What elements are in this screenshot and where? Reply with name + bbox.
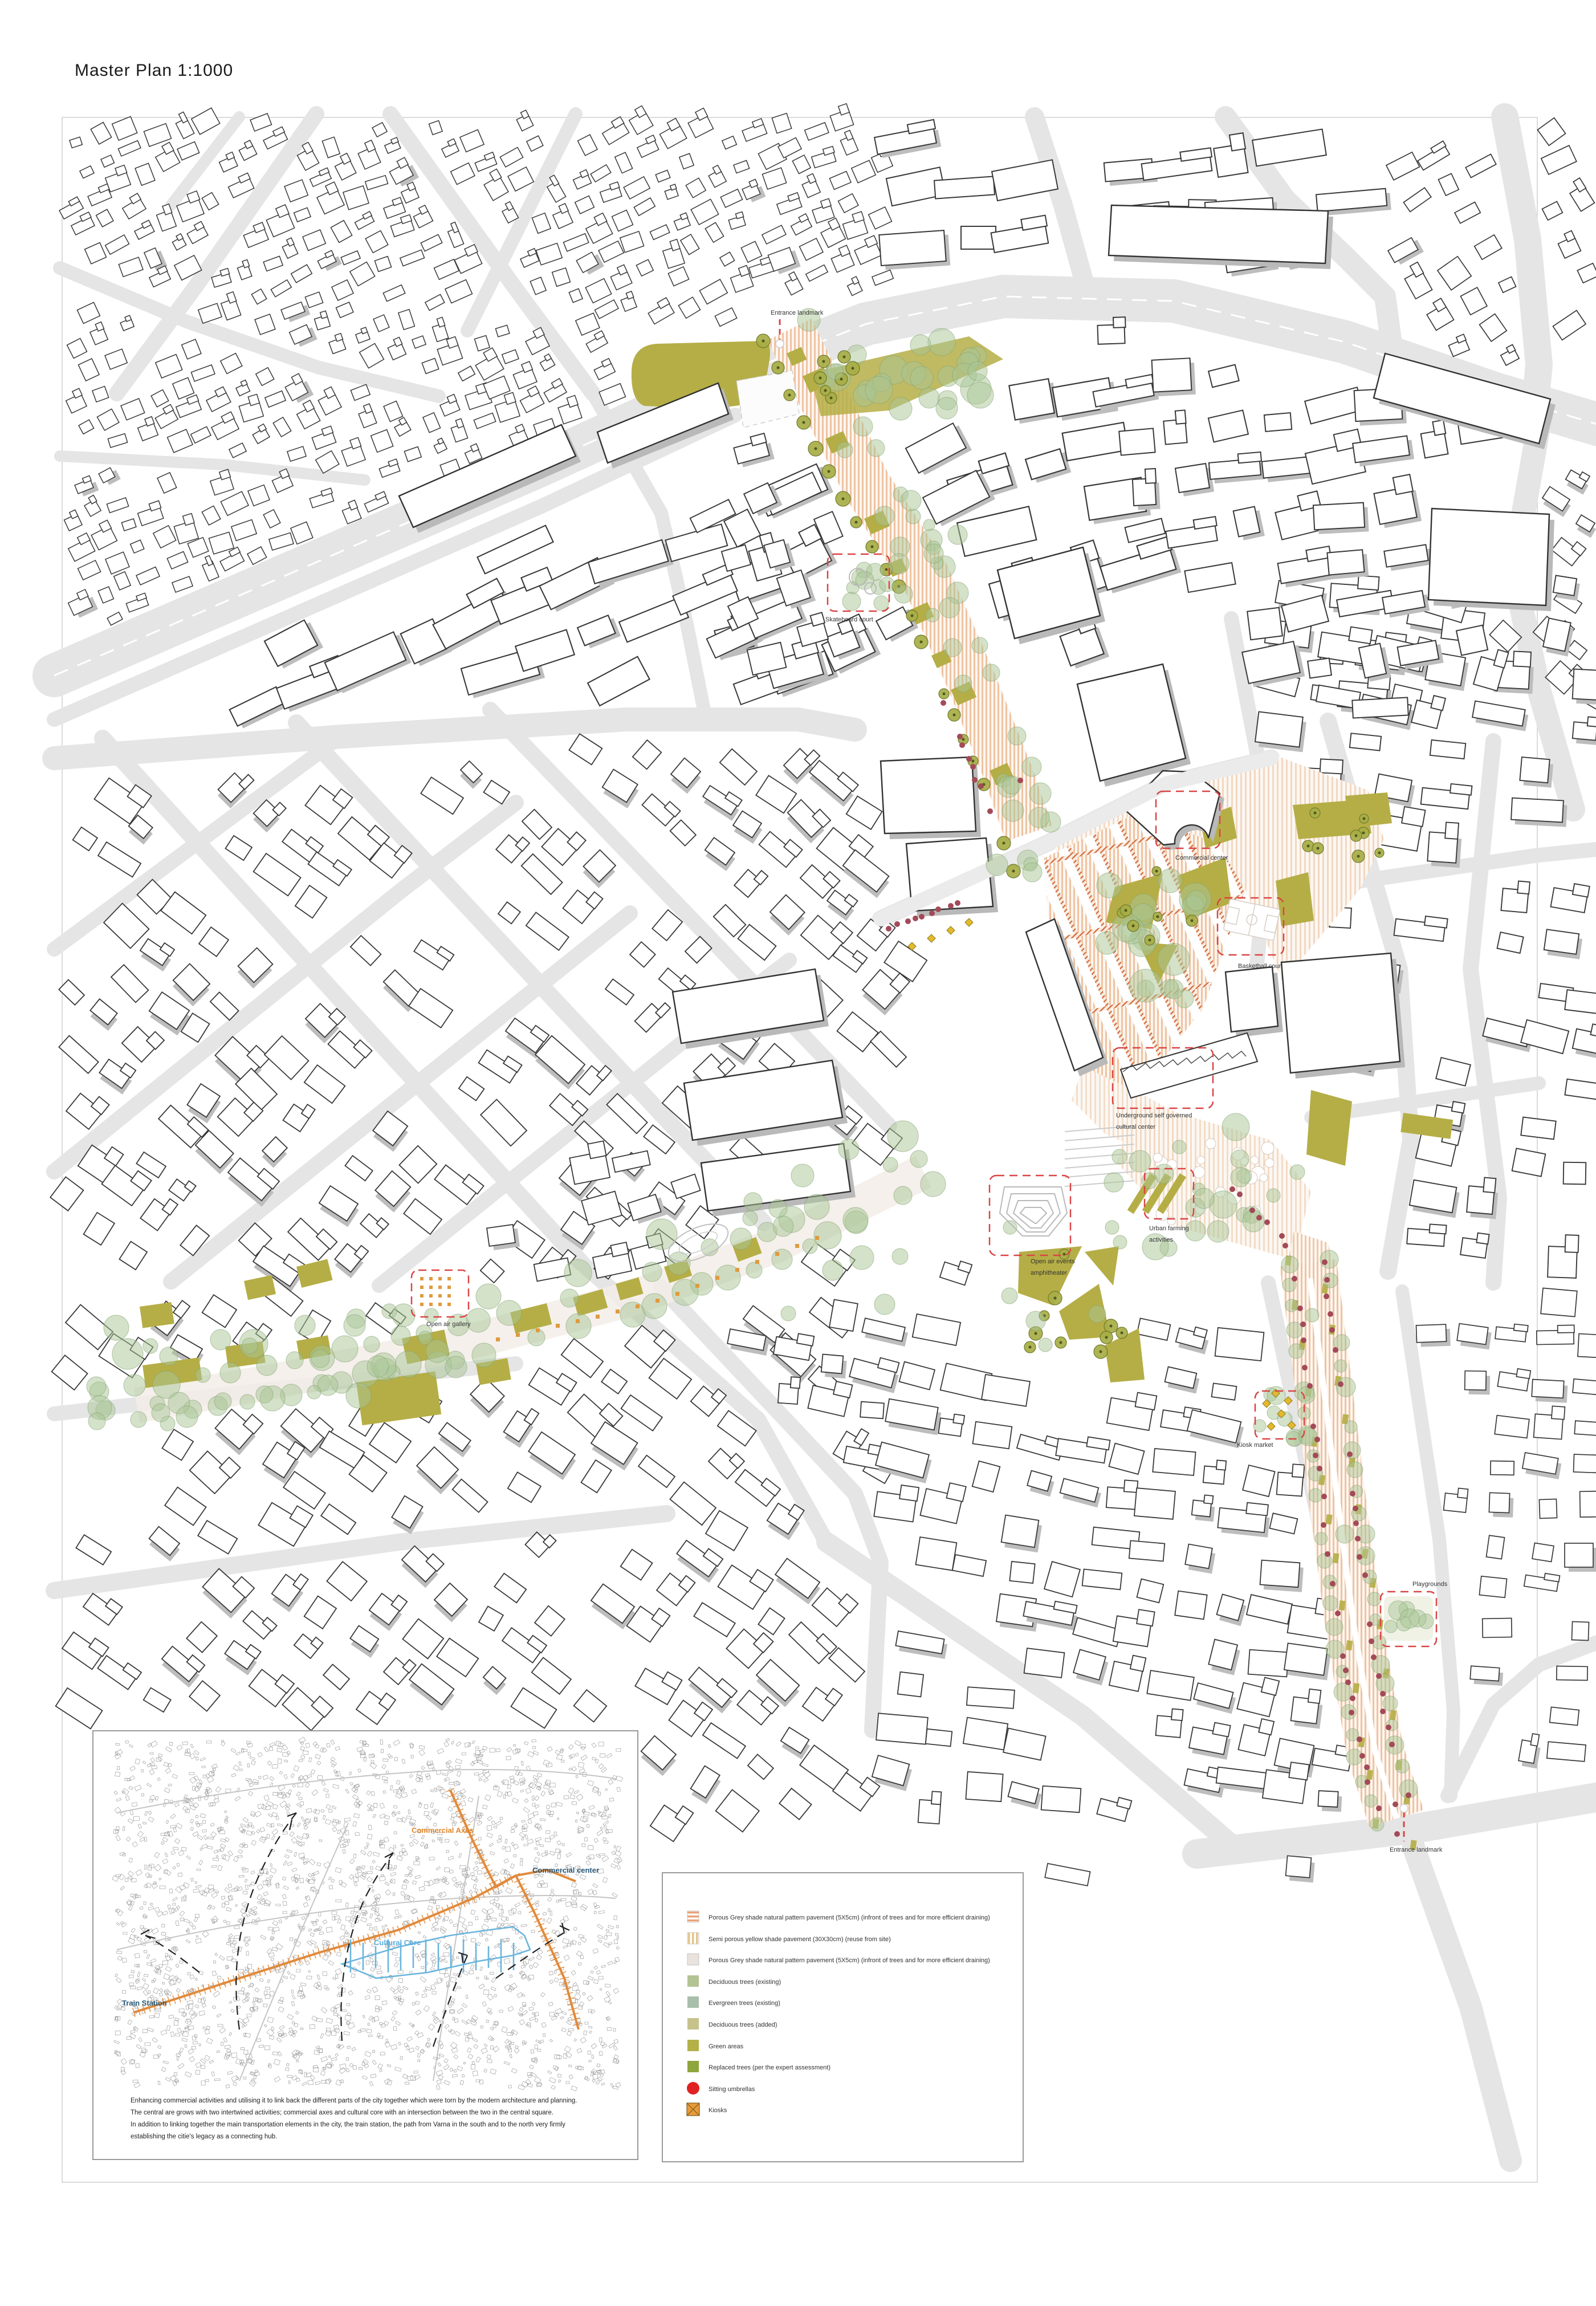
- svg-text:Underground self governed: Underground self governed: [1116, 1112, 1192, 1119]
- svg-text:Urban farming: Urban farming: [1149, 1225, 1189, 1232]
- svg-text:Entrance landmark: Entrance landmark: [771, 310, 824, 316]
- svg-text:Open air gallery: Open air gallery: [426, 1321, 471, 1328]
- svg-text:Green areas: Green areas: [709, 2043, 744, 2050]
- svg-text:Master Plan 1:1000: Master Plan 1:1000: [75, 61, 233, 80]
- svg-text:In addition to linking togethe: In addition to linking together the main…: [131, 2121, 565, 2128]
- svg-text:Skateboard court: Skateboard court: [825, 616, 873, 623]
- svg-text:Commercial center: Commercial center: [1175, 855, 1228, 861]
- svg-text:Kiosks: Kiosks: [709, 2107, 727, 2114]
- svg-text:Entrance landmark: Entrance landmark: [1390, 1847, 1443, 1853]
- svg-text:Commercial center: Commercial center: [532, 1866, 599, 1874]
- svg-text:activities: activities: [1149, 1237, 1174, 1243]
- svg-text:establishing the citie's legac: establishing the citie's legacy as a con…: [131, 2133, 277, 2140]
- svg-text:Deciduous trees (existing): Deciduous trees (existing): [709, 1979, 781, 1986]
- svg-text:Kiosk market: Kiosk market: [1237, 1442, 1273, 1449]
- svg-text:amphitheater: amphitheater: [1031, 1270, 1068, 1276]
- svg-text:Playgrounds: Playgrounds: [1412, 1581, 1448, 1588]
- svg-text:The central are grows with two: The central are grows with two intertwin…: [131, 2109, 553, 2116]
- svg-text:Basketball court: Basketball court: [1238, 963, 1282, 970]
- svg-text:Porous Grey shade natural patt: Porous Grey shade natural pattern paveme…: [709, 1957, 990, 1964]
- svg-text:Open air events: Open air events: [1031, 1258, 1075, 1265]
- svg-text:Train Station: Train Station: [122, 1999, 167, 2007]
- svg-text:Evergreen trees (existing): Evergreen trees (existing): [709, 2000, 780, 2007]
- svg-text:cultural center: cultural center: [1116, 1124, 1155, 1130]
- svg-text:Sitting umbrellas: Sitting umbrellas: [709, 2086, 755, 2093]
- svg-text:Enhancing commercial activitie: Enhancing commercial activities and util…: [131, 2097, 577, 2104]
- svg-text:Cultural Core: Cultural Core: [374, 1938, 421, 1947]
- svg-text:Porous Grey shade natural patt: Porous Grey shade natural pattern paveme…: [709, 1914, 990, 1921]
- svg-text:Commercial Axes: Commercial Axes: [412, 1826, 474, 1835]
- svg-text:Deciduous trees (added): Deciduous trees (added): [709, 2022, 777, 2028]
- svg-text:Replaced trees (per the expert: Replaced trees (per the expert assessmen…: [709, 2064, 830, 2071]
- svg-text:Semi porous yellow shade pavem: Semi porous yellow shade pavement (30X30…: [709, 1936, 891, 1943]
